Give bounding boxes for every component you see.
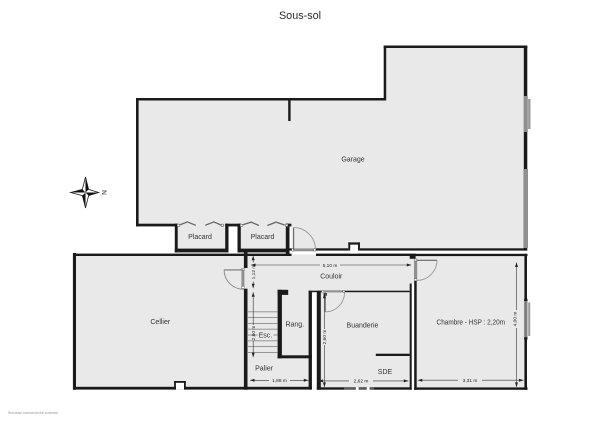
svg-text:2,62 m: 2,62 m xyxy=(354,379,369,385)
svg-text:Rang.: Rang. xyxy=(285,321,304,328)
svg-text:1,88 m: 1,88 m xyxy=(272,378,287,384)
svg-text:Cellier: Cellier xyxy=(150,319,171,326)
svg-text:Chambre - HSP : 2,20m: Chambre - HSP : 2,20m xyxy=(437,319,506,326)
svg-text:Sous-sol: Sous-sol xyxy=(279,10,321,22)
svg-text:1,12 m: 1,12 m xyxy=(251,265,257,280)
svg-text:Esc.: Esc. xyxy=(259,332,273,339)
svg-text:2,60 m: 2,60 m xyxy=(251,326,257,341)
svg-text:Placard: Placard xyxy=(188,234,212,241)
svg-text:3,31 m: 3,31 m xyxy=(463,378,478,384)
svg-text:4,00 m: 4,00 m xyxy=(513,312,519,327)
svg-text:5,10 m: 5,10 m xyxy=(323,263,338,269)
svg-text:Garage: Garage xyxy=(341,157,364,164)
svg-text:SDE: SDE xyxy=(378,369,393,376)
svg-text:Placard: Placard xyxy=(251,234,275,241)
svg-text:Plan non contractuel - documen: Plan non contractuel - document fourni a… xyxy=(8,411,58,415)
svg-text:N: N xyxy=(100,190,107,195)
svg-text:Couloir: Couloir xyxy=(320,273,343,280)
svg-text:Buanderie: Buanderie xyxy=(347,323,379,330)
svg-text:Palier: Palier xyxy=(255,365,274,372)
svg-text:2,60 m: 2,60 m xyxy=(322,330,328,345)
